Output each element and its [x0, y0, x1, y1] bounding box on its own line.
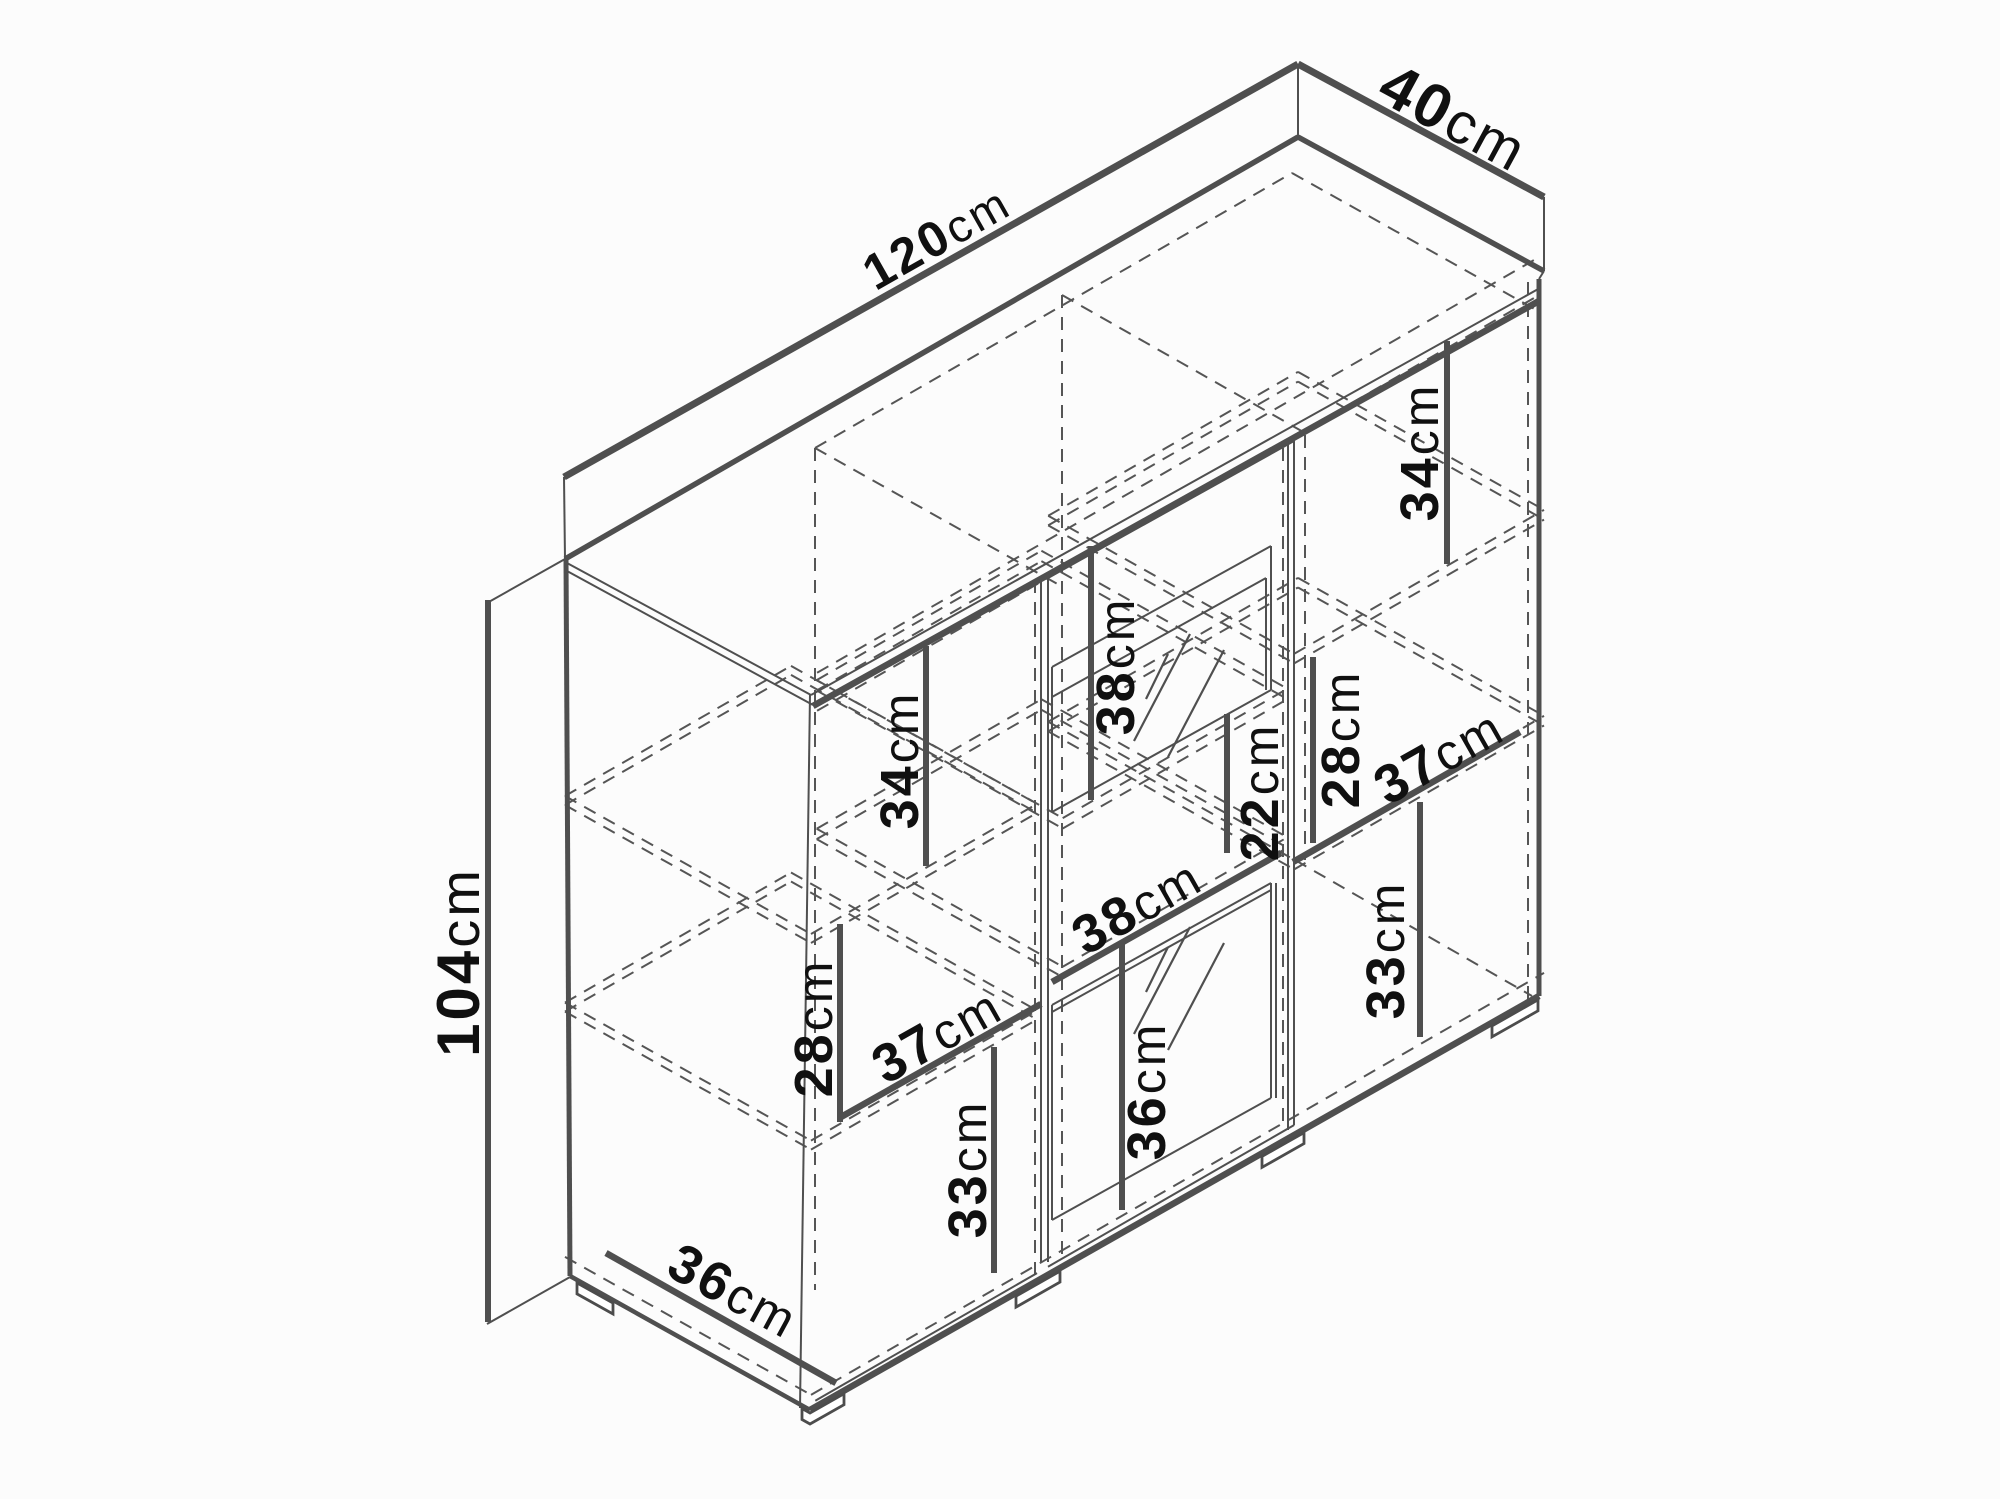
svg-text:34cm: 34cm	[870, 691, 930, 830]
svg-text:104cm: 104cm	[425, 867, 492, 1057]
svg-text:38cm: 38cm	[1086, 597, 1146, 736]
svg-text:33cm: 33cm	[1356, 881, 1416, 1020]
svg-text:28cm: 28cm	[1311, 670, 1371, 809]
svg-text:22cm: 22cm	[1230, 723, 1290, 862]
svg-text:36cm: 36cm	[1117, 1022, 1177, 1161]
svg-text:33cm: 33cm	[938, 1100, 998, 1239]
svg-text:34cm: 34cm	[1390, 383, 1450, 522]
svg-text:28cm: 28cm	[784, 959, 844, 1098]
